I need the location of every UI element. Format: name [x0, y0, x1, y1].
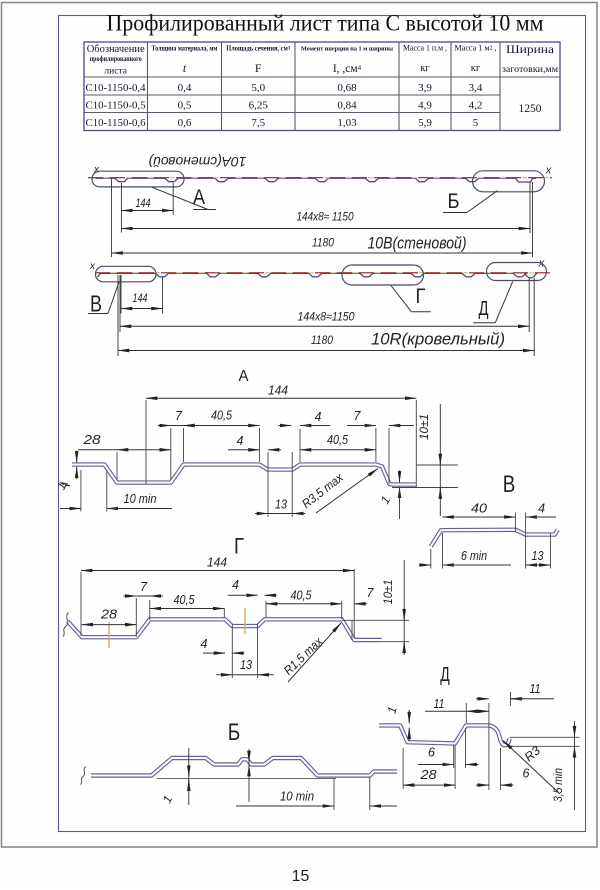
svg-text:144x8≈ 1150: 144x8≈ 1150: [297, 210, 354, 224]
svg-text:профилированного: профилированного: [90, 55, 142, 63]
svg-text:С10-1150-0,6: С10-1150-0,6: [86, 117, 146, 129]
svg-text:5,9: 5,9: [418, 117, 432, 129]
svg-text:10 min: 10 min: [124, 492, 157, 506]
svg-text:4: 4: [201, 637, 208, 651]
svg-text:13: 13: [240, 658, 252, 672]
svg-text:15: 15: [292, 868, 310, 885]
svg-text:С10-1150-0,5: С10-1150-0,5: [86, 100, 146, 112]
svg-text:Толщина материала, мм: Толщина материала, мм: [152, 46, 218, 53]
svg-text:Б: Б: [448, 190, 460, 213]
svg-text:Д: Д: [479, 298, 489, 320]
svg-text:1180: 1180: [312, 236, 334, 250]
svg-text:3,5 min: 3,5 min: [551, 768, 565, 802]
svg-text:x: x: [89, 261, 96, 272]
svg-text:0,5: 0,5: [178, 100, 192, 112]
svg-text:Б: Б: [228, 719, 241, 746]
svg-text:Площадь сечения, см3: Площадь сечения, см3: [226, 46, 290, 53]
svg-text:1180: 1180: [311, 333, 333, 347]
svg-text:В: В: [503, 471, 516, 498]
svg-text:11: 11: [530, 682, 541, 696]
svg-text:40,5: 40,5: [291, 589, 312, 603]
svg-text:40,5: 40,5: [327, 433, 348, 447]
svg-text:144: 144: [136, 196, 151, 210]
svg-text:6: 6: [428, 746, 435, 760]
svg-text:3,4: 3,4: [469, 82, 483, 94]
svg-text:6,25: 6,25: [249, 100, 269, 112]
svg-text:В: В: [90, 291, 102, 317]
svg-text:10±1: 10±1: [417, 414, 431, 440]
svg-text:x: x: [545, 165, 552, 177]
svg-text:40,5: 40,5: [211, 409, 232, 423]
svg-text:6 min: 6 min: [461, 549, 487, 563]
svg-text:0,6: 0,6: [178, 117, 192, 129]
svg-text:С10-1150-0,4: С10-1150-0,4: [86, 82, 146, 94]
svg-text:А: А: [239, 368, 250, 385]
svg-text:6: 6: [523, 767, 530, 781]
svg-text:10 min: 10 min: [280, 790, 314, 804]
svg-text:Момент инерции на 1 м ширины: Момент инерции на 1 м ширины: [301, 46, 393, 53]
svg-text:4: 4: [237, 434, 244, 448]
svg-text:10±1: 10±1: [381, 580, 395, 605]
svg-text:7,5: 7,5: [251, 117, 265, 129]
svg-text:Г: Г: [234, 534, 244, 559]
svg-text:10А(стеновой): 10А(стеновой): [149, 154, 247, 169]
svg-text:Ширина: Ширина: [506, 42, 555, 56]
svg-text:кг: кг: [420, 63, 430, 74]
svg-text:4,2: 4,2: [469, 100, 483, 112]
svg-text:7: 7: [367, 586, 375, 600]
svg-text:1,03: 1,03: [337, 117, 357, 129]
svg-text:13: 13: [275, 498, 287, 512]
svg-text:13: 13: [532, 549, 544, 563]
svg-text:Профилированный лист типа С вы: Профилированный лист типа С высотой 10 м…: [107, 11, 544, 36]
svg-text:7: 7: [175, 409, 183, 423]
svg-text:листа: листа: [104, 67, 127, 77]
svg-text:28: 28: [82, 433, 100, 447]
svg-text:А: А: [193, 186, 205, 209]
svg-text:144x8≈1150: 144x8≈1150: [298, 310, 355, 324]
svg-text:5,0: 5,0: [251, 82, 265, 94]
svg-text:144: 144: [207, 556, 227, 570]
svg-text:4: 4: [232, 578, 239, 592]
svg-text:0,4: 0,4: [178, 82, 192, 94]
svg-text:кг: кг: [471, 63, 481, 74]
svg-text:10В(стеновой): 10В(стеновой): [368, 235, 467, 253]
svg-text:0,84: 0,84: [337, 100, 357, 112]
svg-text:7: 7: [354, 409, 362, 423]
svg-text:40: 40: [471, 502, 487, 516]
svg-text:7: 7: [140, 580, 148, 594]
svg-text:40,5: 40,5: [174, 593, 195, 607]
svg-text:1250: 1250: [519, 103, 542, 115]
svg-text:F: F: [255, 61, 262, 75]
svg-text:Масса 1 п.м ,: Масса 1 п.м ,: [403, 44, 447, 53]
svg-text:144: 144: [268, 384, 288, 398]
svg-text:5: 5: [473, 117, 479, 129]
svg-text:4,9: 4,9: [418, 100, 432, 112]
svg-text:Обозначение: Обозначение: [87, 44, 145, 55]
svg-text:11: 11: [434, 697, 445, 711]
svg-text:3,9: 3,9: [418, 82, 432, 94]
svg-text:Г: Г: [416, 285, 426, 308]
svg-text:0,68: 0,68: [337, 82, 357, 94]
svg-text:4: 4: [315, 410, 322, 424]
svg-text:заготовки,мм: заготовки,мм: [502, 65, 558, 75]
svg-text:28: 28: [100, 608, 117, 622]
svg-text:Д: Д: [440, 663, 450, 686]
svg-text:10R(кровельный): 10R(кровельный): [371, 331, 505, 349]
svg-text:I, ,см4: I, ,см4: [333, 63, 362, 75]
svg-text:144: 144: [133, 291, 148, 305]
svg-text:28: 28: [419, 768, 436, 782]
svg-text:4: 4: [538, 502, 545, 516]
